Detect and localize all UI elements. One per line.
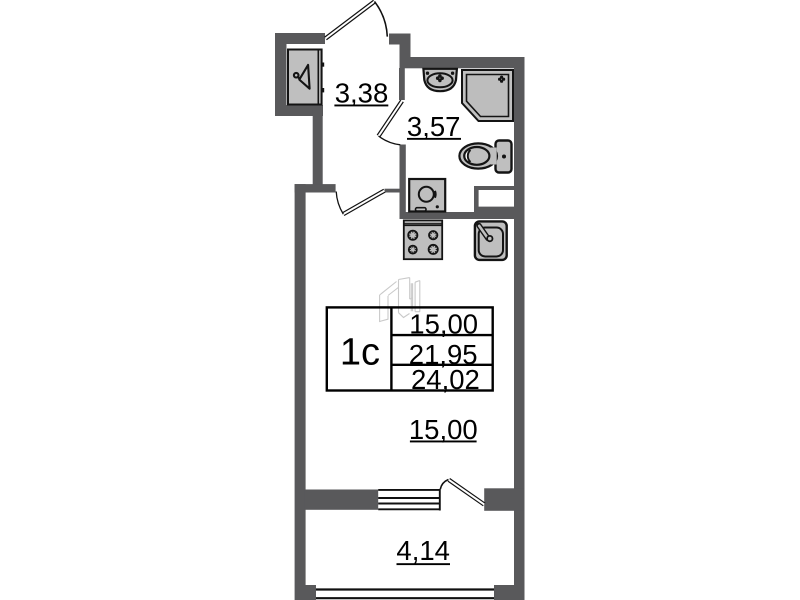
svg-text:15,00: 15,00	[409, 308, 478, 339]
svg-text:1с: 1с	[340, 332, 380, 374]
svg-text:24,02: 24,02	[411, 364, 480, 395]
svg-text:3,57: 3,57	[407, 111, 461, 142]
svg-text:4,14: 4,14	[396, 535, 450, 566]
svg-text:3,38: 3,38	[335, 77, 389, 108]
